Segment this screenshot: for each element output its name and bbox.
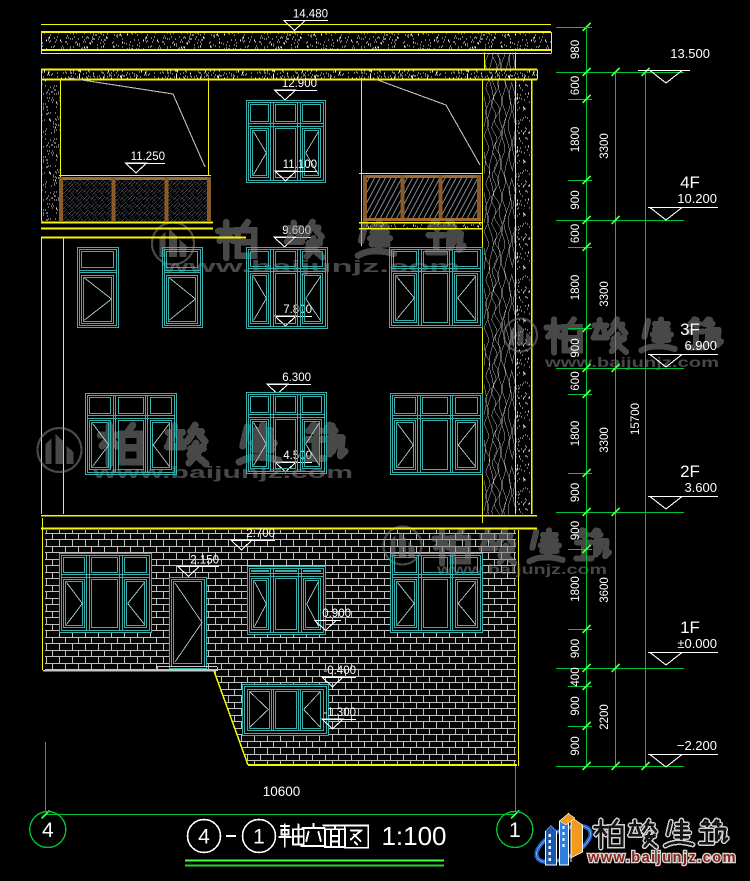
svg-text:2F: 2F bbox=[680, 462, 700, 481]
svg-text:4: 4 bbox=[42, 819, 54, 842]
svg-text:3F: 3F bbox=[680, 320, 700, 339]
svg-text:900: 900 bbox=[570, 521, 582, 540]
svg-text:-0.400: -0.400 bbox=[323, 665, 356, 677]
svg-text:2200: 2200 bbox=[599, 704, 611, 730]
svg-text:11.100: 11.100 bbox=[283, 159, 317, 171]
svg-text:400: 400 bbox=[570, 667, 582, 686]
svg-text:900: 900 bbox=[570, 190, 582, 209]
svg-text:900: 900 bbox=[570, 639, 582, 658]
svg-text:600: 600 bbox=[570, 224, 582, 243]
svg-text:1800: 1800 bbox=[570, 275, 582, 301]
svg-text:14.480: 14.480 bbox=[293, 9, 328, 21]
svg-text:1:100: 1:100 bbox=[381, 821, 446, 851]
svg-text:2.150: 2.150 bbox=[190, 555, 219, 567]
svg-text:1800: 1800 bbox=[570, 576, 582, 602]
svg-text:980: 980 bbox=[570, 40, 582, 59]
svg-text:600: 600 bbox=[570, 76, 582, 95]
svg-text:0.900: 0.900 bbox=[322, 608, 351, 620]
svg-text:10.200: 10.200 bbox=[677, 191, 717, 206]
svg-text:3300: 3300 bbox=[599, 133, 611, 159]
svg-text:1F: 1F bbox=[680, 618, 700, 637]
svg-text:6.900: 6.900 bbox=[684, 338, 717, 353]
svg-text:15700: 15700 bbox=[630, 403, 642, 435]
svg-text:10600: 10600 bbox=[263, 784, 301, 799]
svg-text:6.300: 6.300 bbox=[282, 372, 311, 384]
svg-text:1800: 1800 bbox=[570, 127, 582, 153]
svg-text:2.700: 2.700 bbox=[246, 528, 275, 540]
svg-text:3300: 3300 bbox=[599, 281, 611, 307]
svg-text:1800: 1800 bbox=[570, 421, 582, 447]
svg-text:±0.000: ±0.000 bbox=[677, 636, 717, 651]
svg-text:13.500: 13.500 bbox=[670, 46, 710, 61]
svg-text:600: 600 bbox=[570, 371, 582, 390]
svg-text:www.baijunjz.com: www.baijunjz.com bbox=[587, 850, 737, 866]
svg-text:11.250: 11.250 bbox=[131, 151, 165, 163]
svg-text:1: 1 bbox=[509, 819, 521, 842]
svg-text:4: 4 bbox=[198, 826, 210, 849]
svg-text:900: 900 bbox=[570, 338, 582, 357]
svg-text:3600: 3600 bbox=[599, 577, 611, 603]
svg-text:900: 900 bbox=[570, 483, 582, 502]
svg-text:−2.200: −2.200 bbox=[677, 738, 717, 753]
svg-text:-1.300: -1.300 bbox=[323, 707, 356, 719]
svg-text:3.600: 3.600 bbox=[684, 480, 717, 495]
svg-text:900: 900 bbox=[570, 736, 582, 755]
svg-text:1: 1 bbox=[253, 826, 265, 849]
svg-text:4F: 4F bbox=[680, 173, 700, 192]
svg-text:12.900: 12.900 bbox=[282, 78, 317, 90]
svg-text:900: 900 bbox=[570, 696, 582, 715]
svg-text:3300: 3300 bbox=[599, 427, 611, 453]
